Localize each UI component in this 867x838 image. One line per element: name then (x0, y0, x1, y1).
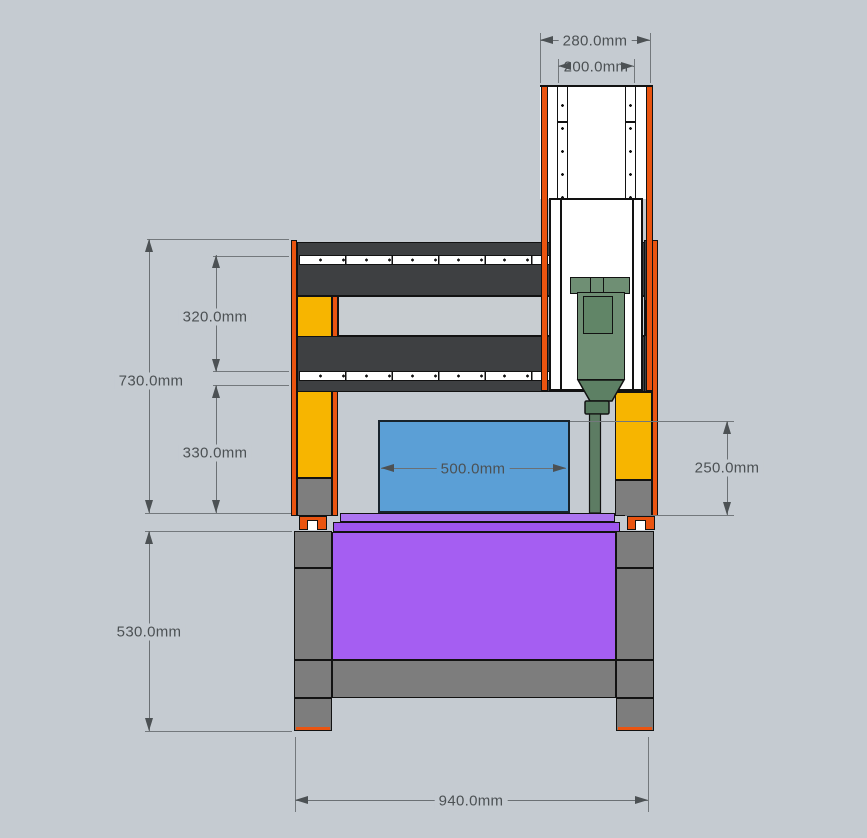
dimension-label-530: 530.0mm (113, 624, 186, 641)
spindle-panel (583, 296, 613, 334)
dimension-label-730: 730.0mm (115, 373, 188, 390)
table-frame-strip (333, 522, 620, 532)
leg-left-joint-3 (295, 697, 331, 699)
arrow-280-right (637, 36, 650, 44)
leg-right-joint-1 (617, 567, 653, 569)
z-tower-edge-left (541, 86, 548, 391)
arrow-280-left (540, 36, 553, 44)
ext-line-940-right (648, 737, 649, 812)
ext-line-730-top (147, 239, 289, 240)
z-tower-edge-right (646, 86, 653, 391)
arrow-530-bottom (145, 718, 153, 731)
spindle-plate-line-right (632, 200, 634, 389)
arrow-730-top (145, 239, 153, 252)
arrow-500-right (553, 464, 566, 472)
ext-line-330-top (213, 385, 289, 386)
spindle-taper (578, 380, 624, 401)
base-cabinet (332, 532, 616, 660)
z-tower-rail-joint-right (625, 121, 636, 123)
leg-right-pad (618, 727, 652, 730)
arrow-320-top (212, 255, 220, 268)
right-foot-clamp-notch (635, 520, 646, 530)
spindle-plate-line-left (560, 200, 562, 389)
spindle-collet-nut (585, 401, 609, 414)
arrow-250-bottom (723, 502, 731, 515)
dimension-label-250: 250.0mm (691, 460, 764, 477)
table-top-strip (340, 513, 615, 522)
stand-leg-left (294, 531, 332, 731)
z-tower-rail-joint-left (557, 121, 568, 123)
arrow-330-top (212, 385, 220, 398)
left-foot-clamp-notch (307, 520, 318, 530)
spindle-tool-rod (590, 414, 601, 513)
ext-line-320-bottom (213, 371, 289, 372)
arrow-500-left (381, 464, 394, 472)
ext-line-530-top (145, 531, 292, 532)
ext-line-250-bottom (625, 515, 734, 516)
dimension-label-320: 320.0mm (179, 309, 252, 326)
arrow-330-bottom (212, 500, 220, 513)
leg-right-joint-3 (617, 697, 653, 699)
ext-line-320-top (213, 256, 289, 257)
arrow-940-right (635, 796, 648, 804)
base-bottom-rail (332, 660, 616, 698)
leg-left-pad (296, 727, 330, 730)
ext-line-530-bottom (145, 731, 292, 732)
arrow-200-right (621, 62, 634, 70)
leg-left-joint-2 (295, 659, 331, 661)
z-tower-rail-right (625, 86, 636, 199)
dimension-label-940: 940.0mm (435, 793, 508, 810)
arrow-940-left (295, 796, 308, 804)
arrow-250-top (723, 421, 731, 434)
ext-line-280-right (650, 33, 651, 83)
spindle-cap-notch (590, 277, 604, 293)
dimension-label-500: 500.0mm (437, 461, 510, 478)
arrow-320-bottom (212, 359, 220, 372)
dimension-label-330: 330.0mm (179, 445, 252, 462)
leg-right-joint-2 (617, 659, 653, 661)
arrow-730-bottom (145, 500, 153, 513)
arrow-530-top (145, 531, 153, 544)
stand-leg-right (616, 531, 654, 731)
ext-line-250-top (570, 421, 734, 422)
ext-line-table-left (145, 513, 291, 514)
spindle-nose-assembly (575, 378, 629, 518)
dimension-label-280: 280.0mm (559, 33, 632, 50)
leg-left-joint-1 (295, 567, 331, 569)
ext-line-200-right (634, 59, 635, 83)
z-tower-rail-left (557, 86, 568, 199)
arrow-200-left (558, 62, 571, 70)
cad-drawing-canvas: 280.0mm 200.0mm 320.0mm 730.0mm 330.0mm … (0, 0, 867, 838)
left-column-foot (297, 478, 332, 516)
